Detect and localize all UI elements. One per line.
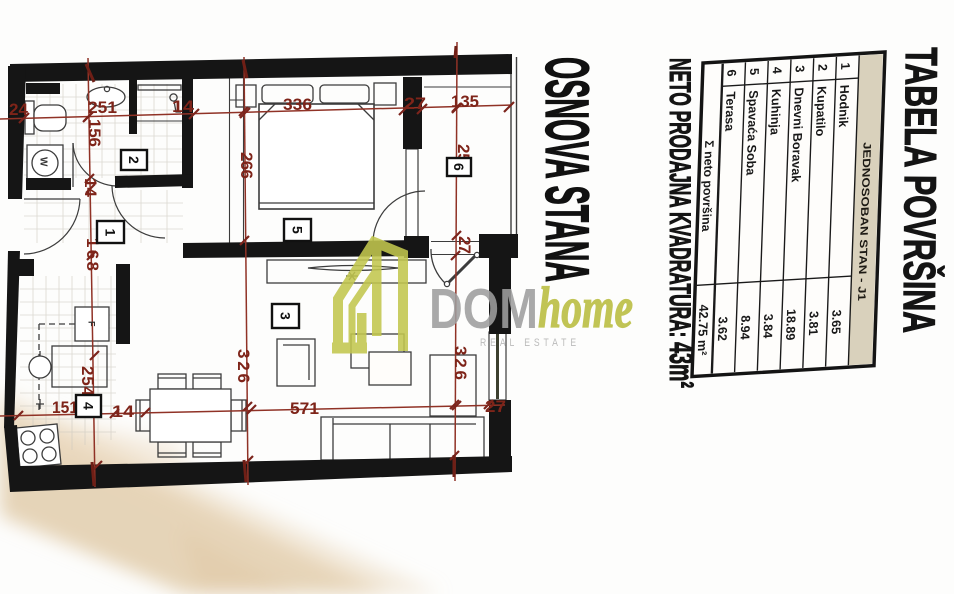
svg-text:24: 24 <box>9 100 28 119</box>
svg-text:OSNOVA STANA: OSNOVA STANA <box>533 57 601 282</box>
svg-text:TABELA POVRŠINA: TABELA POVRŠINA <box>894 47 947 333</box>
svg-text:W: W <box>38 157 49 167</box>
svg-text:home: home <box>538 275 633 340</box>
svg-text:Kuhinja: Kuhinja <box>768 88 784 136</box>
svg-text:27: 27 <box>404 94 426 113</box>
svg-text:Kupatilo: Kupatilo <box>813 86 829 137</box>
svg-text:27: 27 <box>455 236 474 254</box>
svg-text:151: 151 <box>52 398 78 417</box>
svg-text:135: 135 <box>451 92 479 111</box>
svg-text:3.81: 3.81 <box>806 311 821 336</box>
svg-text:5: 5 <box>290 226 306 234</box>
svg-text:F: F <box>87 321 97 327</box>
svg-text:42.75 m²: 42.75 m² <box>695 304 712 356</box>
svg-text:156: 156 <box>85 119 104 147</box>
svg-text:14: 14 <box>112 402 135 421</box>
svg-text:254: 254 <box>78 366 97 397</box>
svg-text:DOM: DOM <box>429 277 538 341</box>
svg-text:2: 2 <box>126 156 142 164</box>
svg-text:5: 5 <box>747 68 761 76</box>
svg-text:REAL ESTATE: REAL ESTATE <box>480 337 580 349</box>
svg-text:3.62: 3.62 <box>715 316 730 341</box>
svg-text:3: 3 <box>792 65 806 73</box>
svg-text:326: 326 <box>234 349 253 383</box>
svg-text:2: 2 <box>815 64 829 72</box>
svg-text:3: 3 <box>278 312 294 320</box>
svg-text:18.89: 18.89 <box>783 309 798 341</box>
svg-text:Hodnik: Hodnik <box>836 84 852 128</box>
svg-text:6: 6 <box>451 163 467 171</box>
svg-text:326: 326 <box>451 346 470 380</box>
svg-text:Terasa: Terasa <box>722 91 737 132</box>
svg-text:4: 4 <box>81 402 97 410</box>
svg-text:6: 6 <box>724 69 738 77</box>
svg-text:336: 336 <box>283 95 312 114</box>
svg-text:3.84: 3.84 <box>760 313 775 338</box>
svg-text:571: 571 <box>290 399 319 418</box>
svg-text:4: 4 <box>770 66 784 74</box>
svg-text:3.65: 3.65 <box>829 309 844 334</box>
svg-text:14: 14 <box>172 97 195 116</box>
svg-text:251: 251 <box>88 98 117 117</box>
svg-text:14: 14 <box>81 178 100 198</box>
svg-text:27: 27 <box>485 397 506 416</box>
svg-text:266: 266 <box>237 152 256 179</box>
svg-text:1: 1 <box>838 62 852 70</box>
svg-text:8.94: 8.94 <box>738 315 753 340</box>
svg-text:1: 1 <box>103 229 119 237</box>
